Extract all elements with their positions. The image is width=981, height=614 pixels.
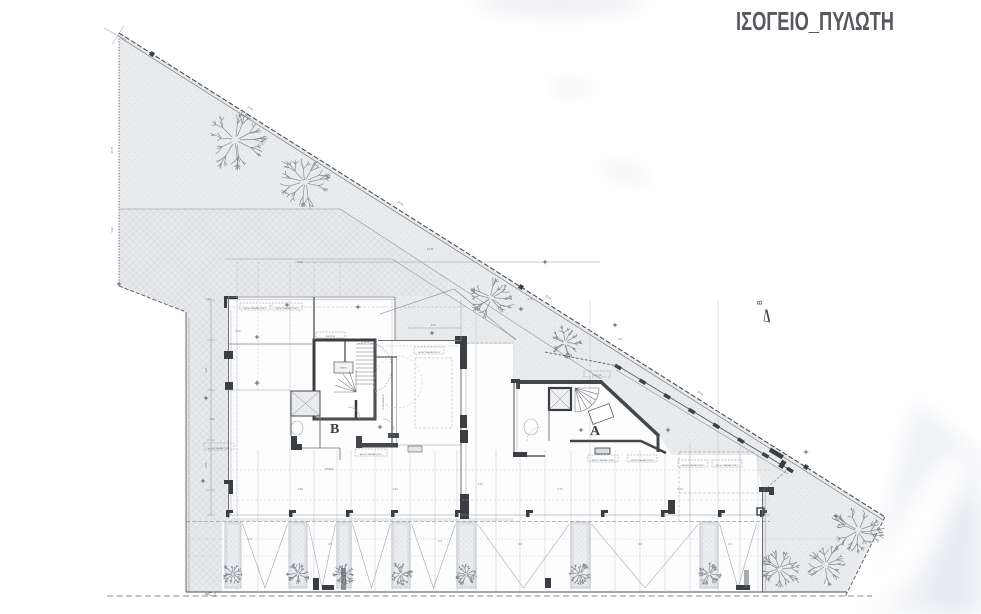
svg-text:ΘΕΣΗ ΣΤΑΘΜΕΥΣΗΣ 7: ΘΕΣΗ ΣΤΑΘΜΕΥΣΗΣ 7 (715, 464, 739, 467)
svg-text:4.95: 4.95 (297, 487, 303, 491)
svg-text:5.0: 5.0 (638, 542, 642, 546)
svg-text:ΙΣΟΓΕΙΟ_ΠΥΛΩΤΗ: ΙΣΟΓΕΙΟ_ΠΥΛΩΤΗ (736, 6, 894, 36)
svg-text:15.75: 15.75 (110, 146, 114, 153)
svg-text:2.3: 2.3 (248, 537, 252, 541)
svg-text:ΘΕΣΗ ΣΤΑΘΜΕΥΣΗΣ 6: ΘΕΣΗ ΣΤΑΘΜΕΥΣΗΣ 6 (681, 464, 705, 467)
svg-text:4.10: 4.10 (477, 482, 483, 486)
svg-text:ΑΝΕΛΚ: ΑΝΕΛΚ (340, 367, 347, 370)
svg-text:2.3: 2.3 (438, 539, 442, 543)
svg-text:5.00: 5.00 (677, 487, 683, 491)
svg-text:3.45: 3.45 (527, 297, 533, 301)
svg-text:ΘΕΣΗ ΣΤΑΘΜΕΥΣΗΣ 3: ΘΕΣΗ ΣΤΑΘΜΕΥΣΗΣ 3 (275, 307, 299, 310)
svg-text:ΘΕΣΗ ΣΤΑΘΜΕΥΣΗΣ 5: ΘΕΣΗ ΣΤΑΘΜΕΥΣΗΣ 5 (630, 459, 654, 462)
svg-text:ΕΞΩΣΤΗΣ: ΕΞΩΣΤΗΣ (326, 336, 336, 338)
svg-text:5.20: 5.20 (235, 329, 241, 333)
svg-text:ΘΕΣΗ ΣΤΑΘΜΕΥΣΗΣ 6: ΘΕΣΗ ΣΤΑΘΜΕΥΣΗΣ 6 (418, 351, 441, 354)
svg-text:2.70: 2.70 (557, 487, 563, 491)
svg-text:5.20: 5.20 (205, 297, 211, 301)
svg-text:ΠΛΑΚΑ: ΠΛΑΚΑ (325, 467, 334, 471)
svg-text:9.30: 9.30 (110, 227, 114, 233)
svg-text:2.4: 2.4 (728, 542, 732, 546)
svg-text:B: B (330, 422, 339, 437)
svg-text:3.10: 3.10 (392, 487, 398, 491)
svg-text:ΘΕΣΗ ΣΤΑΘΜΕΥΣΗΣ 4: ΘΕΣΗ ΣΤΑΘΜΕΥΣΗΣ 4 (591, 459, 615, 462)
svg-text:2.50: 2.50 (297, 260, 303, 264)
svg-text:14.30: 14.30 (427, 247, 434, 251)
svg-text:4.5: 4.5 (328, 542, 332, 546)
svg-text:A: A (590, 424, 601, 439)
svg-text:3.95: 3.95 (205, 367, 208, 372)
svg-text:1.50: 1.50 (209, 417, 215, 421)
svg-text:5.0: 5.0 (518, 542, 522, 546)
svg-text:1.05: 1.05 (431, 324, 436, 327)
svg-text:ΘΕΣΗ ΣΤΑΘΜΕΥΣΗΣ 3: ΘΕΣΗ ΣΤΑΘΜΕΥΣΗΣ 3 (359, 453, 383, 456)
svg-text:ΘΕΣΗ ΣΤΑΘΜΕΥΣΗΣ 2: ΘΕΣΗ ΣΤΑΘΜΕΥΣΗΣ 2 (243, 307, 267, 310)
svg-text:4.20: 4.20 (617, 337, 623, 341)
svg-text:B: B (757, 300, 764, 305)
svg-text:4.90: 4.90 (205, 462, 208, 467)
svg-text:ΕΞΩΣΤΗΣ: ΕΞΩΣΤΗΣ (592, 375, 602, 377)
